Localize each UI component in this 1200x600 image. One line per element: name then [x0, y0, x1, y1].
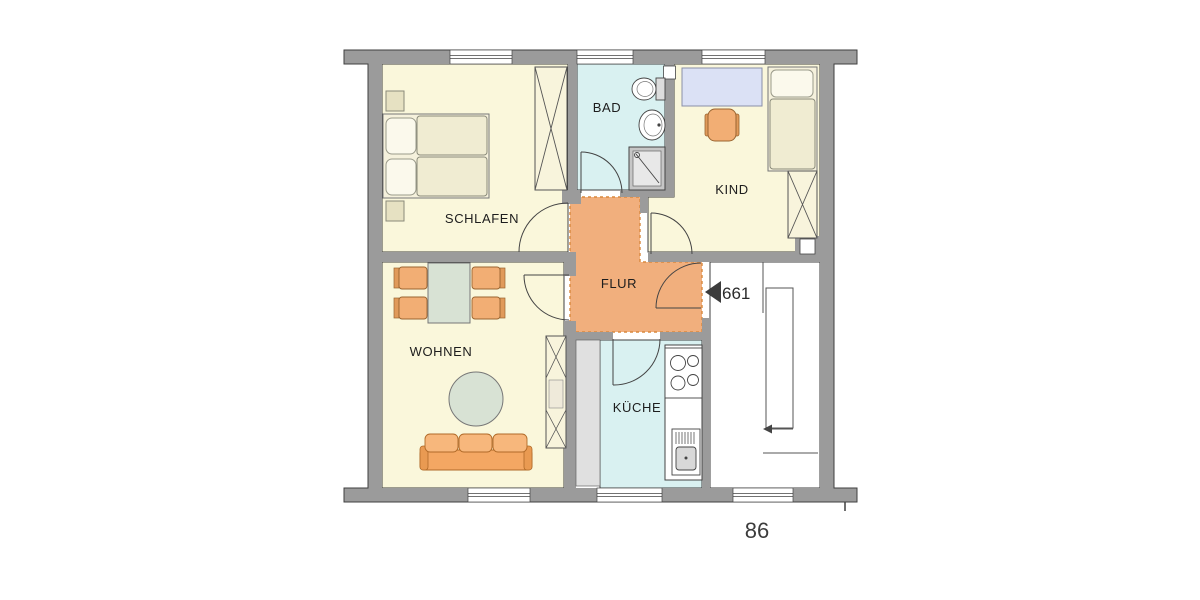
kueche-fixtures: [665, 345, 702, 480]
window-schlafen: [450, 50, 512, 64]
round-table: [449, 372, 503, 426]
wall-schlafen-bad: [568, 64, 577, 190]
window-bad: [577, 50, 633, 64]
floor-plan: SCHLAFEN BAD KIND FLUR WOHNEN KÜCHE 661 …: [0, 0, 1200, 600]
wardrobe: [535, 67, 567, 190]
shower: [629, 147, 665, 190]
window-wohnen: [468, 488, 530, 502]
single-bed: [768, 67, 817, 171]
kitchen-sink: [672, 429, 700, 475]
mattress: [417, 157, 487, 196]
window-stairwell: [733, 488, 793, 502]
nightstand: [386, 201, 404, 221]
wall-schlafen-flur-stub: [562, 190, 581, 204]
nightstand: [386, 91, 404, 111]
label-wohnen: WOHNEN: [410, 344, 473, 359]
wall-schlafen-wohnen: [382, 252, 576, 262]
kitchen-tall-cabinet: [576, 340, 600, 486]
label-flur: FLUR: [601, 276, 637, 291]
pillow: [386, 159, 416, 195]
pillow: [386, 118, 416, 154]
wall-flur-kueche-right: [660, 332, 702, 340]
label-bad: BAD: [593, 100, 622, 115]
toilet: [632, 78, 665, 100]
shelf-unit: [546, 336, 566, 448]
wall-flur-kind-stub: [640, 197, 648, 213]
label-kind: KIND: [715, 182, 748, 197]
wall-bad-kind: [665, 64, 674, 197]
wall-flur-kueche-left: [576, 332, 613, 340]
window-kueche: [597, 488, 662, 502]
wall-flur-stairwell: [702, 318, 710, 488]
shaft-small: [664, 66, 676, 79]
label-kueche: KÜCHE: [613, 400, 662, 415]
dining-table: [428, 263, 470, 323]
sink: [639, 110, 665, 140]
apartment-number: 661: [722, 284, 750, 303]
wall-left: [368, 64, 382, 488]
plan-number: 86: [745, 518, 769, 543]
shaft-box: [800, 239, 815, 254]
wall-right: [820, 64, 834, 488]
stove: [665, 348, 702, 398]
wall-kind-stairwell: [648, 252, 820, 262]
window-kind: [702, 50, 765, 64]
desk: [682, 68, 762, 106]
mattress: [417, 116, 487, 155]
wall-wohnen-flur-upper: [564, 262, 576, 276]
wardrobe: [788, 171, 817, 238]
label-schlafen: SCHLAFEN: [445, 211, 519, 226]
sofa: [420, 434, 532, 470]
desk-chair: [705, 109, 739, 141]
